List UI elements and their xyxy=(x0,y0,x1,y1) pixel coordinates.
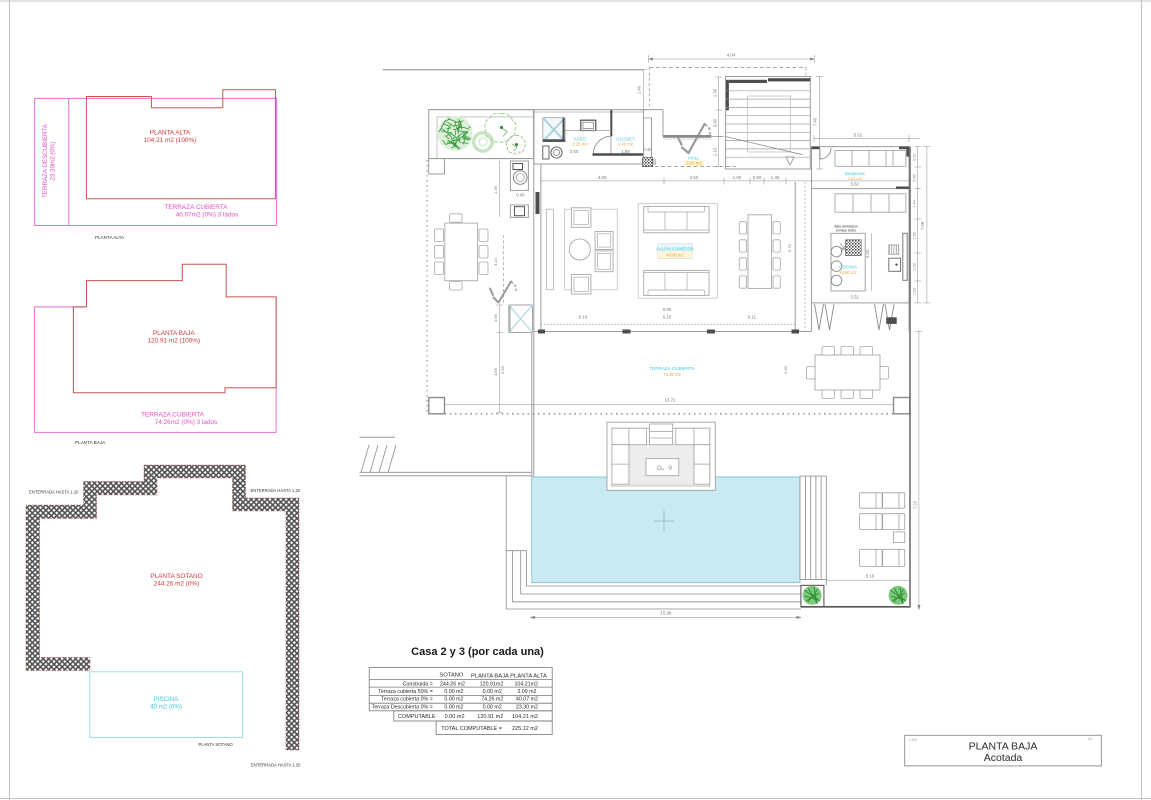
svg-text:225.12 m2: 225.12 m2 xyxy=(512,726,538,732)
svg-text:ENTERRADA HASTA 1.20: ENTERRADA HASTA 1.20 xyxy=(29,490,79,495)
svg-text:1.10: 1.10 xyxy=(712,147,717,156)
svg-text:23.30m2 (0%): 23.30m2 (0%) xyxy=(50,142,57,181)
svg-text:SALON-COMEDOR: SALON-COMEDOR xyxy=(656,247,693,252)
svg-text:PLANTA BAJA: PLANTA BAJA xyxy=(75,440,106,445)
svg-text:1.03: 1.03 xyxy=(913,263,917,270)
svg-text:40.07m2 (0%) 3 lados: 40.07m2 (0%) 3 lados xyxy=(176,212,239,219)
svg-text:PLANTA SOTANO: PLANTA SOTANO xyxy=(150,573,202,580)
svg-text:104.21m2: 104.21m2 xyxy=(514,681,538,687)
svg-text:120.91m2: 120.91m2 xyxy=(480,681,504,687)
svg-text:1.40 m2: 1.40 m2 xyxy=(618,142,634,147)
svg-text:TOTAL COMPUTABLE =: TOTAL COMPUTABLE = xyxy=(441,726,502,732)
svg-text:104.21 m2: 104.21 m2 xyxy=(512,714,538,720)
svg-text:Terraza cubierta 50% =: Terraza cubierta 50% = xyxy=(378,689,433,695)
svg-text:0.65: 0.65 xyxy=(493,313,498,322)
svg-text:0.00 m2: 0.00 m2 xyxy=(483,689,502,695)
svg-text:3.96 m2: 3.96 m2 xyxy=(686,161,702,166)
svg-text:74.26 m2: 74.26 m2 xyxy=(481,696,503,702)
svg-text:SOTANO: SOTANO xyxy=(439,672,464,678)
svg-text:1.40: 1.40 xyxy=(637,85,642,94)
svg-text:244.26 m2 (0%): 244.26 m2 (0%) xyxy=(154,581,199,588)
svg-text:Oₒ: Oₒ xyxy=(657,466,665,472)
svg-text:40.07 m2: 40.07 m2 xyxy=(516,696,538,702)
svg-text:COCINA: COCINA xyxy=(839,265,858,270)
svg-text:5.10: 5.10 xyxy=(866,574,875,579)
svg-text:ENTERRADA HASTA 1.20: ENTERRADA HASTA 1.20 xyxy=(251,488,301,493)
svg-text:1.44: 1.44 xyxy=(913,200,917,207)
svg-text:1.88: 1.88 xyxy=(621,149,630,154)
svg-text:5.10: 5.10 xyxy=(579,315,588,320)
svg-text:PLANTA ALTA: PLANTA ALTA xyxy=(510,673,547,679)
svg-text:0.40: 0.40 xyxy=(516,193,525,198)
svg-text:1.36: 1.36 xyxy=(493,185,498,194)
svg-text:23.30 m2: 23.30 m2 xyxy=(516,705,538,711)
svg-text:0.00 m2: 0.00 m2 xyxy=(444,696,463,702)
svg-text:TERRAZA CUBIERTA: TERRAZA CUBIERTA xyxy=(141,412,205,419)
svg-text:4.56: 4.56 xyxy=(493,367,498,376)
svg-text:2.50: 2.50 xyxy=(690,175,699,180)
svg-text:7.22: 7.22 xyxy=(913,500,918,509)
svg-text:15.98: 15.98 xyxy=(661,611,673,616)
svg-text:Terraza Descubierta 0% =: Terraza Descubierta 0% = xyxy=(372,705,433,711)
svg-text:0.50: 0.50 xyxy=(753,175,762,180)
svg-text:1.05: 1.05 xyxy=(733,175,742,180)
svg-text:PLANTA ALTA: PLANTA ALTA xyxy=(95,235,125,240)
svg-text:4.50: 4.50 xyxy=(865,249,870,258)
svg-text:ENTERRADA HASTA 1.20: ENTERRADA HASTA 1.20 xyxy=(251,763,301,768)
svg-text:⚲: ⚲ xyxy=(668,465,672,472)
svg-text:0.90: 0.90 xyxy=(913,174,917,181)
svg-text:0.00 m2: 0.00 m2 xyxy=(483,705,502,711)
svg-text:74.26 m2: 74.26 m2 xyxy=(663,372,681,377)
svg-text:104.21 m2 (100%): 104.21 m2 (100%) xyxy=(144,137,197,144)
svg-text:PLANTA BAJA: PLANTA BAJA xyxy=(153,330,196,337)
svg-text:5.62: 5.62 xyxy=(854,133,863,138)
svg-text:Casa 2 y 3 (por cada una): Casa 2 y 3 (por cada una) xyxy=(411,646,544,658)
svg-text:3.01 m2: 3.01 m2 xyxy=(847,176,862,181)
svg-text:TERRAZA DESCUBIERTA: TERRAZA DESCUBIERTA xyxy=(42,123,49,198)
svg-text:120.91 m2: 120.91 m2 xyxy=(477,714,503,720)
svg-text:120.91 m2 (100%): 120.91 m2 (100%) xyxy=(148,338,201,345)
svg-text:16.72: 16.72 xyxy=(665,398,677,403)
svg-text:0.91: 0.91 xyxy=(913,153,917,160)
svg-text:1.30: 1.30 xyxy=(712,88,717,97)
svg-text:1.66: 1.66 xyxy=(913,232,917,239)
svg-text:COMPUTABLE: COMPUTABLE xyxy=(398,714,436,720)
svg-text:1.03: 1.03 xyxy=(913,288,917,295)
svg-text:PLANTA BAJA: PLANTA BAJA xyxy=(969,741,1038,753)
svg-text:5.10: 5.10 xyxy=(663,315,672,320)
svg-text:4.04: 4.04 xyxy=(727,53,736,58)
svg-text:0.00 m2: 0.00 m2 xyxy=(444,705,463,711)
svg-text:7.09: 7.09 xyxy=(920,221,925,230)
svg-text:3.25 m2: 3.25 m2 xyxy=(572,142,588,147)
svg-text:244.26 m2: 244.26 m2 xyxy=(440,681,465,687)
svg-text:7.40: 7.40 xyxy=(813,117,818,126)
svg-text:3.13: 3.13 xyxy=(493,257,498,266)
svg-text:5.50: 5.50 xyxy=(500,365,505,374)
svg-text:PLANTA BAJA: PLANTA BAJA xyxy=(471,673,509,679)
svg-text:Terraza cubierta 0% =: Terraza cubierta 0% = xyxy=(381,696,433,702)
svg-text:PLANTA SOTANO: PLANTA SOTANO xyxy=(199,742,234,747)
svg-text:1.35: 1.35 xyxy=(771,175,780,180)
svg-text:Construida =: Construida = xyxy=(403,681,433,687)
svg-text:9.80: 9.80 xyxy=(663,307,672,312)
svg-text:40 m2 (0%): 40 m2 (0%) xyxy=(150,704,182,711)
svg-text:5.79: 5.79 xyxy=(787,243,792,252)
svg-text:0.40: 0.40 xyxy=(643,147,652,152)
svg-text:5.11: 5.11 xyxy=(748,315,757,320)
svg-text:10.80 m2: 10.80 m2 xyxy=(839,270,857,275)
svg-text:Acotada: Acotada xyxy=(984,752,1023,764)
svg-text:0.90: 0.90 xyxy=(712,118,717,127)
svg-text:PISCINA: PISCINA xyxy=(154,696,180,703)
svg-text:48.96 m2: 48.96 m2 xyxy=(666,253,684,258)
svg-text:4.50: 4.50 xyxy=(598,175,607,180)
svg-text:2.50: 2.50 xyxy=(570,149,579,154)
svg-text:TERRAZA CUBIERTA: TERRAZA CUBIERTA xyxy=(649,366,695,371)
svg-text:TERRAZA CUBIERTA: TERRAZA CUBIERTA xyxy=(165,204,229,211)
svg-text:0.00 m2: 0.00 m2 xyxy=(445,714,465,720)
svg-text:0.00 m2: 0.00 m2 xyxy=(444,689,463,695)
svg-text:A3: A3 xyxy=(1088,737,1092,741)
svg-text:PLANTA ALTA: PLANTA ALTA xyxy=(150,130,191,137)
svg-text:5.50: 5.50 xyxy=(783,365,788,374)
svg-text:5.52: 5.52 xyxy=(851,295,860,300)
svg-text:3.09 m2: 3.09 m2 xyxy=(517,689,536,695)
svg-text:1:100: 1:100 xyxy=(909,738,917,742)
svg-text:SOT.: SOT. xyxy=(653,158,657,165)
svg-text:en fase techo: en fase techo xyxy=(836,229,856,233)
svg-text:74.26m2 (0%) 3 lados: 74.26m2 (0%) 3 lados xyxy=(155,419,218,426)
svg-text:5.52: 5.52 xyxy=(851,182,860,187)
